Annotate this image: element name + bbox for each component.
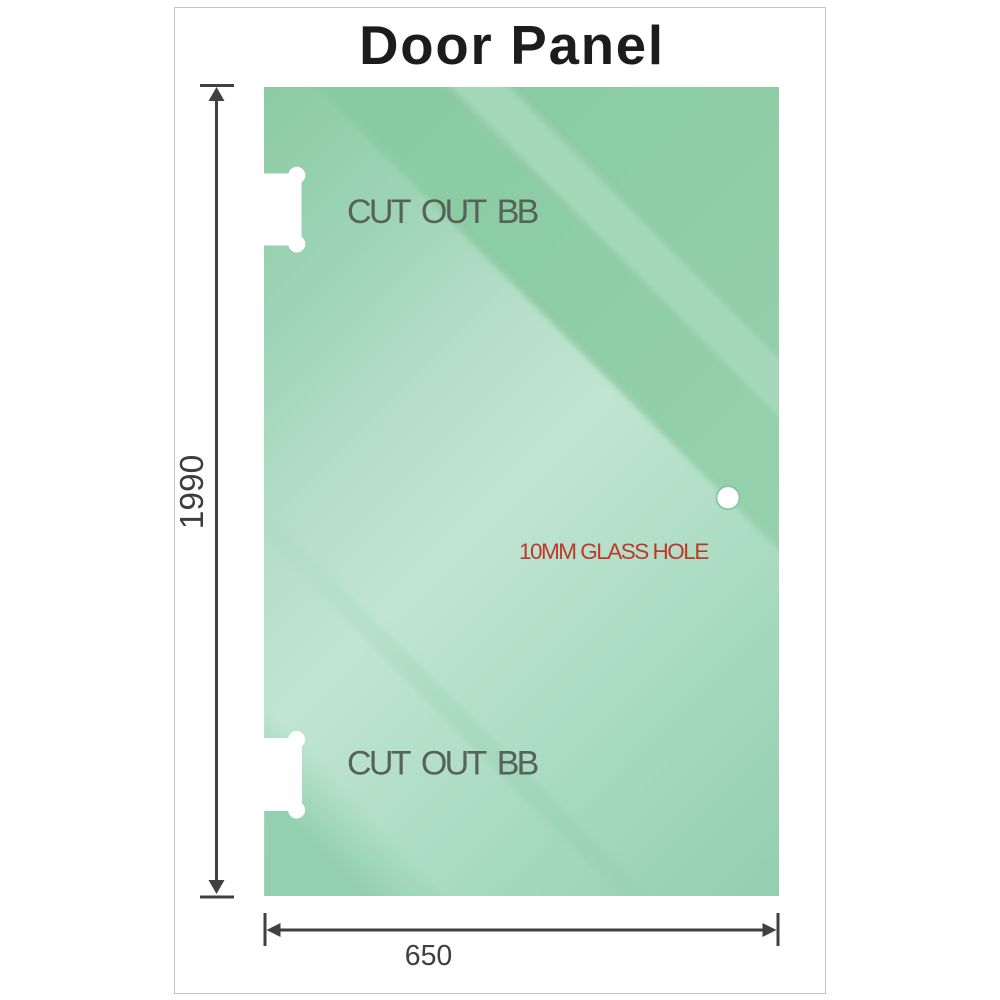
- svg-text:10MM GLASS HOLE: 10MM GLASS HOLE: [519, 539, 709, 564]
- svg-text:CUT OUT BB: CUT OUT BB: [347, 745, 538, 783]
- svg-text:650: 650: [405, 940, 453, 972]
- svg-text:1990: 1990: [174, 455, 211, 530]
- svg-text:Door Panel: Door Panel: [359, 15, 665, 76]
- svg-text:CUT OUT BB: CUT OUT BB: [347, 193, 538, 231]
